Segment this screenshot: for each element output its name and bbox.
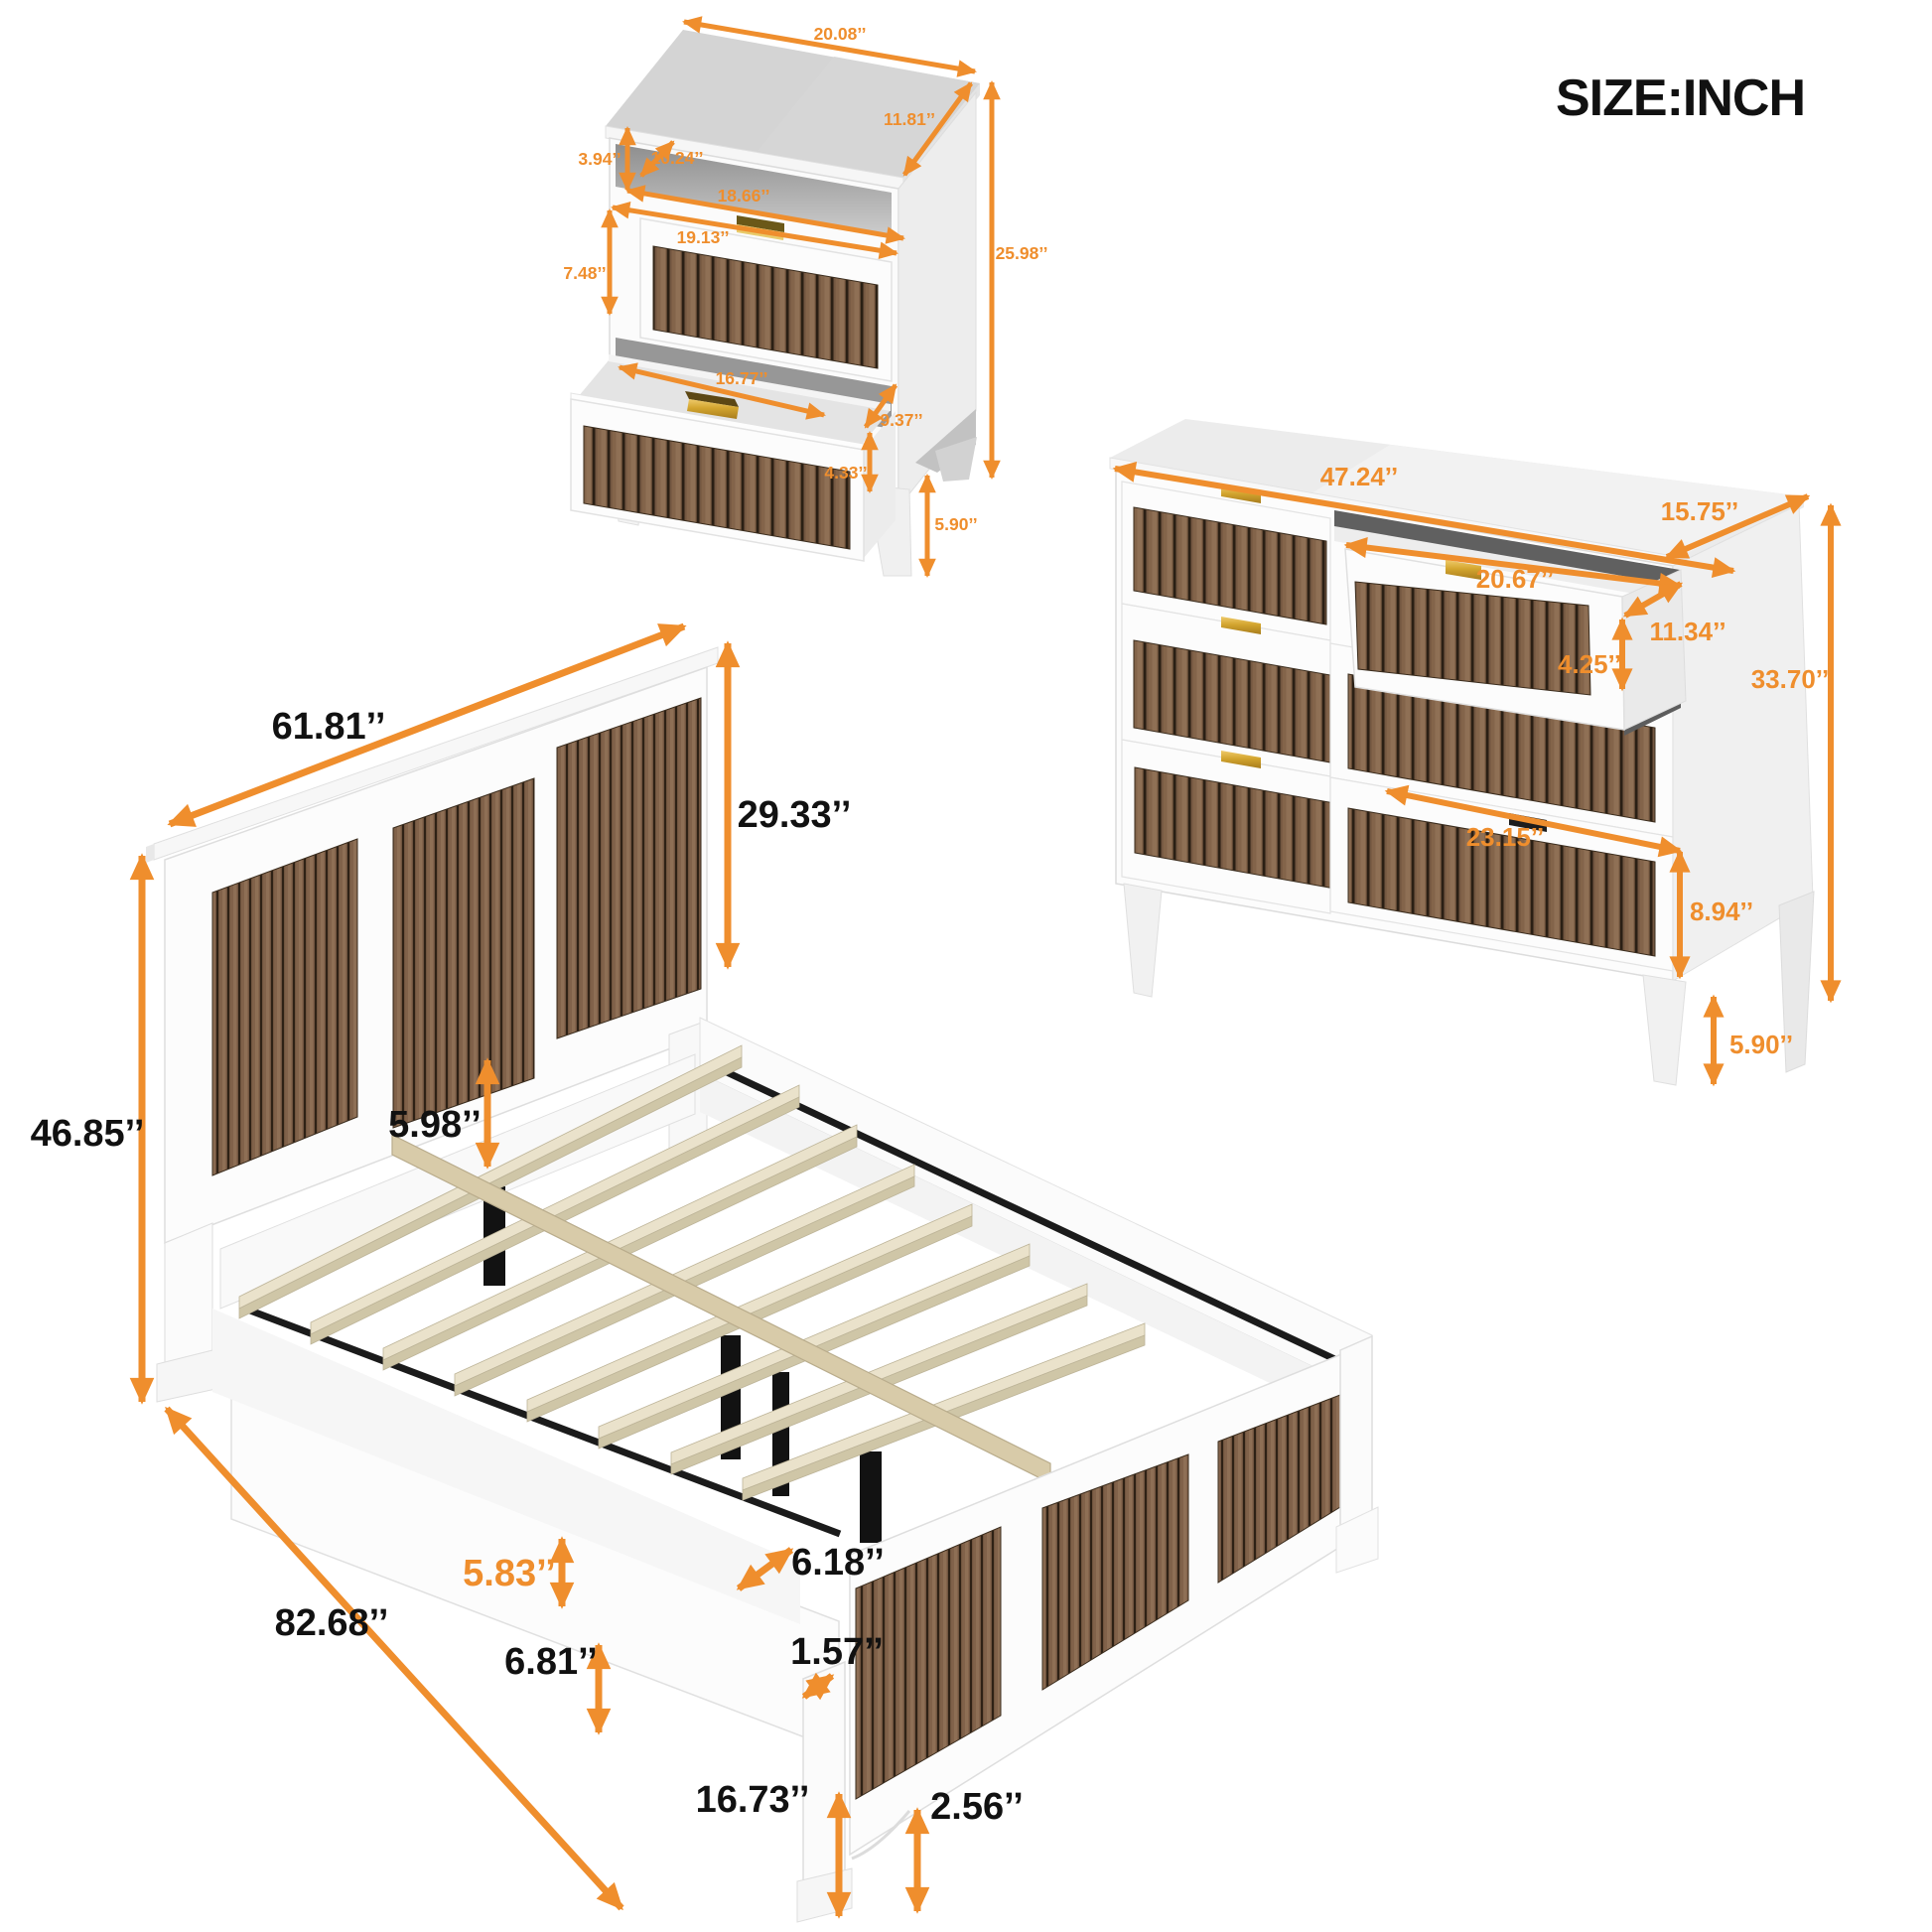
svg-text:15.75’’: 15.75’’	[1661, 496, 1739, 526]
svg-text:7.48’’: 7.48’’	[563, 263, 606, 283]
svg-text:6.18’’: 6.18’’	[791, 1542, 885, 1584]
svg-text:10.24’’: 10.24’’	[651, 148, 704, 168]
svg-text:25.98’’: 25.98’’	[996, 243, 1048, 263]
svg-text:16.73’’: 16.73’’	[696, 1779, 810, 1821]
svg-text:8.94’’: 8.94’’	[1690, 897, 1753, 926]
svg-text:46.85’’: 46.85’’	[31, 1113, 145, 1155]
svg-text:5.98’’: 5.98’’	[388, 1104, 482, 1146]
svg-text:20.67’’: 20.67’’	[1476, 564, 1555, 594]
svg-text:20.08’’: 20.08’’	[814, 24, 867, 44]
svg-text:4.33’’: 4.33’’	[824, 463, 867, 483]
svg-text:5.90’’: 5.90’’	[934, 514, 977, 534]
svg-text:6.81’’: 6.81’’	[504, 1641, 598, 1683]
svg-text:23.15’’: 23.15’’	[1466, 822, 1545, 852]
svg-text:29.33’’: 29.33’’	[738, 794, 852, 836]
svg-text:5.90’’: 5.90’’	[1729, 1030, 1793, 1059]
svg-text:1.57’’: 1.57’’	[790, 1631, 884, 1673]
svg-text:3.94’’: 3.94’’	[578, 149, 621, 169]
svg-text:9.37’’: 9.37’’	[880, 410, 922, 430]
svg-text:5.83’’: 5.83’’	[463, 1553, 556, 1594]
svg-text:47.24’’: 47.24’’	[1320, 462, 1399, 491]
svg-text:18.66’’: 18.66’’	[718, 186, 770, 206]
svg-text:33.70’’: 33.70’’	[1751, 664, 1830, 694]
svg-text:19.13’’: 19.13’’	[677, 227, 730, 247]
svg-text:4.25’’: 4.25’’	[1558, 649, 1621, 679]
svg-text:11.34’’: 11.34’’	[1649, 617, 1725, 646]
svg-text:SIZE:INCH: SIZE:INCH	[1556, 69, 1805, 127]
svg-text:11.81’’: 11.81’’	[884, 109, 935, 129]
svg-text:16.77’’: 16.77’’	[716, 368, 768, 388]
svg-text:2.56’’: 2.56’’	[930, 1786, 1024, 1828]
svg-text:82.68’’: 82.68’’	[275, 1602, 389, 1644]
svg-text:61.81’’: 61.81’’	[272, 706, 386, 748]
